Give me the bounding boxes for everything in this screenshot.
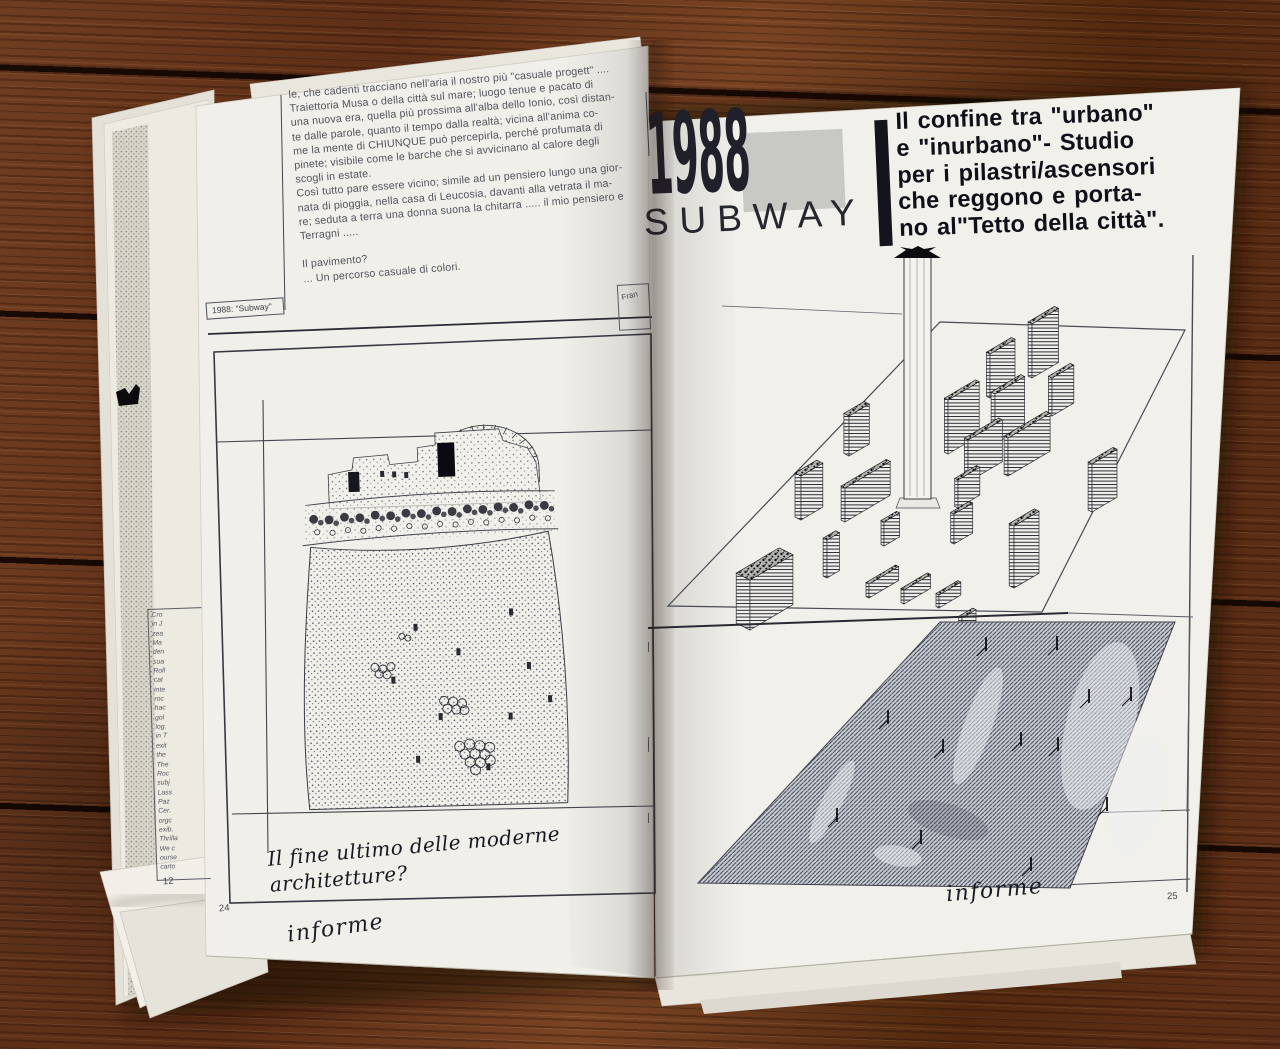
article-text: le, che cadenti tracciano nell'aria il n… <box>288 58 675 286</box>
right-page-number: 25 <box>1167 891 1178 902</box>
pillar-capital <box>894 246 941 258</box>
central-pillar <box>894 246 941 508</box>
author-credit-box: Fran <box>617 283 651 331</box>
axonometric-city-drawing <box>648 246 1196 652</box>
underpage-page-number: 12 <box>163 876 174 888</box>
castle-tower-drawing <box>286 408 592 816</box>
margin-column-text: Cro in J zea Ma den sua Roll cat inte ro… <box>151 610 179 872</box>
year-heading: 1988 <box>644 95 752 211</box>
hatched-plane-drawing <box>648 606 1196 916</box>
author-credit-text: Fran <box>621 289 639 301</box>
left-page-number: 24 <box>219 903 230 915</box>
photo-of-magazine-on-floor: Cro in J zea Ma den sua Roll cat inte ro… <box>0 0 1280 1049</box>
underpage-margin-column: Cro in J zea Ma den sua Roll cat inte ro… <box>147 607 210 881</box>
article-title: Il confine tra "urbano" e "inurbano"- St… <box>895 97 1225 242</box>
